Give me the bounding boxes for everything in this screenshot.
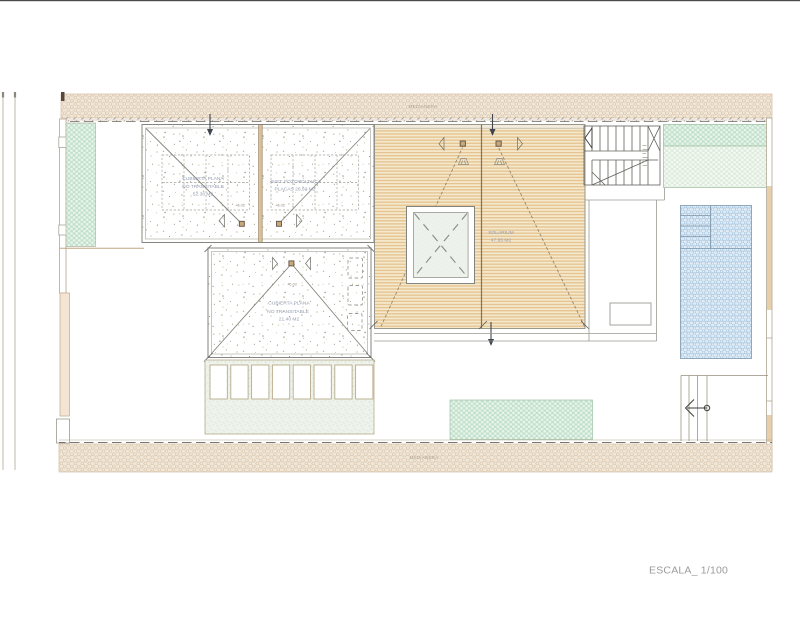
- svg-text:ESCALA_ 1/100: ESCALA_ 1/100: [649, 565, 728, 577]
- svg-text:52.36 M2: 52.36 M2: [193, 192, 214, 198]
- svg-text:47.95 M2: 47.95 M2: [491, 238, 512, 244]
- svg-text:21.40 M2: 21.40 M2: [279, 317, 300, 323]
- svg-text:+6.02: +6.02: [235, 203, 246, 208]
- svg-text:NO TRANSITABLE: NO TRANSITABLE: [267, 309, 309, 315]
- svg-text:MEDIANERA: MEDIANERA: [409, 455, 438, 460]
- svg-text:MEDIANERA: MEDIANERA: [408, 104, 437, 109]
- svg-text:NO TRANSITABLE: NO TRANSITABLE: [182, 184, 224, 190]
- svg-text:CUBIERTA PLANA: CUBIERTA PLANA: [182, 176, 224, 182]
- svg-text:CUBIERTA PLANA: CUBIERTA PLANA: [268, 301, 310, 307]
- svg-text:INST. FOTOVOLTAICA: INST. FOTOVOLTAICA: [271, 179, 322, 185]
- svg-text:PLACAS 26.50 M2: PLACAS 26.50 M2: [274, 187, 315, 193]
- svg-text:+6.02: +6.02: [275, 203, 286, 208]
- svg-text:SOLARIUM: SOLARIUM: [488, 230, 514, 236]
- svg-text:+6.02: +6.02: [287, 282, 298, 287]
